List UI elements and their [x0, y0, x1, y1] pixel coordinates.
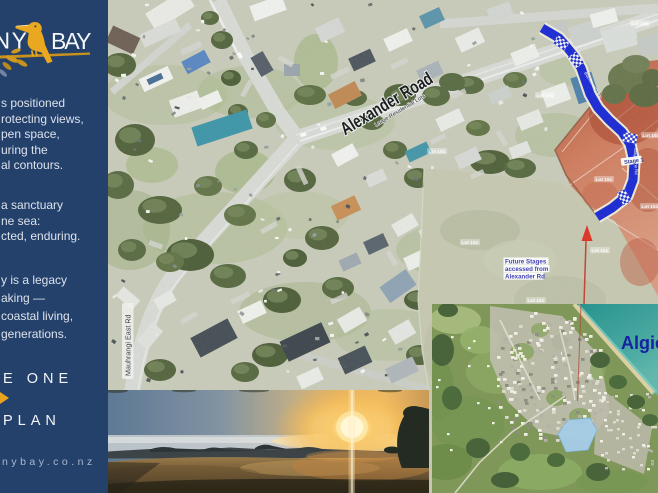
svg-text:NY: NY — [0, 28, 27, 54]
svg-text:Algies: Algies — [621, 333, 658, 353]
svg-text:BAY: BAY — [51, 28, 92, 54]
